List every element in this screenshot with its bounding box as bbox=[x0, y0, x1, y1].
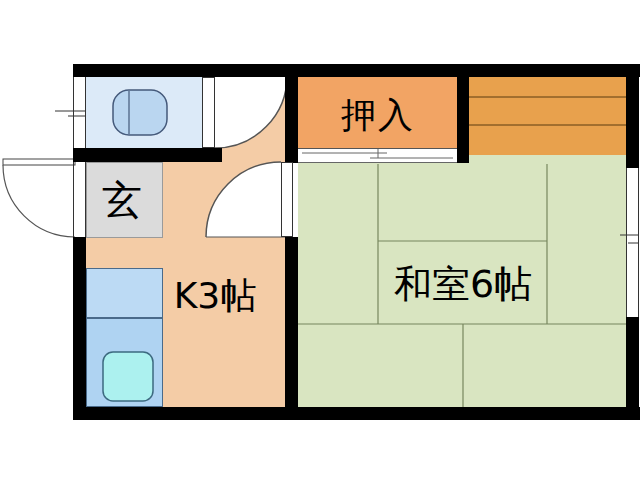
window-left-symbol bbox=[73, 77, 86, 148]
floorplan-canvas: 玄 K3帖 押入 和室6帖 bbox=[0, 0, 640, 480]
fusuma-track-lines bbox=[302, 149, 453, 158]
wall-right-lower bbox=[626, 317, 639, 420]
wall-oshiire-divider bbox=[457, 64, 469, 163]
entrance-door-arc bbox=[3, 159, 75, 237]
room-door-panel bbox=[281, 162, 293, 237]
label-genkan: 玄 bbox=[102, 180, 142, 220]
label-washitsu: 和室6帖 bbox=[394, 265, 532, 303]
wall-toilet-genkan bbox=[73, 148, 222, 162]
window-right-symbol bbox=[626, 168, 639, 317]
label-oshiire: 押入 bbox=[341, 98, 415, 133]
toilet-icon bbox=[113, 90, 167, 135]
wall-central-lower bbox=[285, 237, 298, 420]
toilet-door-panel bbox=[202, 77, 215, 148]
wall-central-upper bbox=[285, 64, 298, 163]
wall-bottom bbox=[73, 407, 640, 420]
shelf-stripe-lines bbox=[469, 97, 626, 125]
entrance-opening bbox=[73, 162, 86, 237]
label-kitchen: K3帖 bbox=[174, 278, 257, 314]
toilet-door-arc bbox=[215, 75, 287, 148]
wall-right-upper bbox=[626, 64, 639, 168]
wall-top bbox=[73, 64, 640, 77]
sink-icon bbox=[103, 352, 153, 401]
room-door-arc bbox=[206, 162, 293, 237]
wall-left-lower bbox=[73, 237, 86, 420]
